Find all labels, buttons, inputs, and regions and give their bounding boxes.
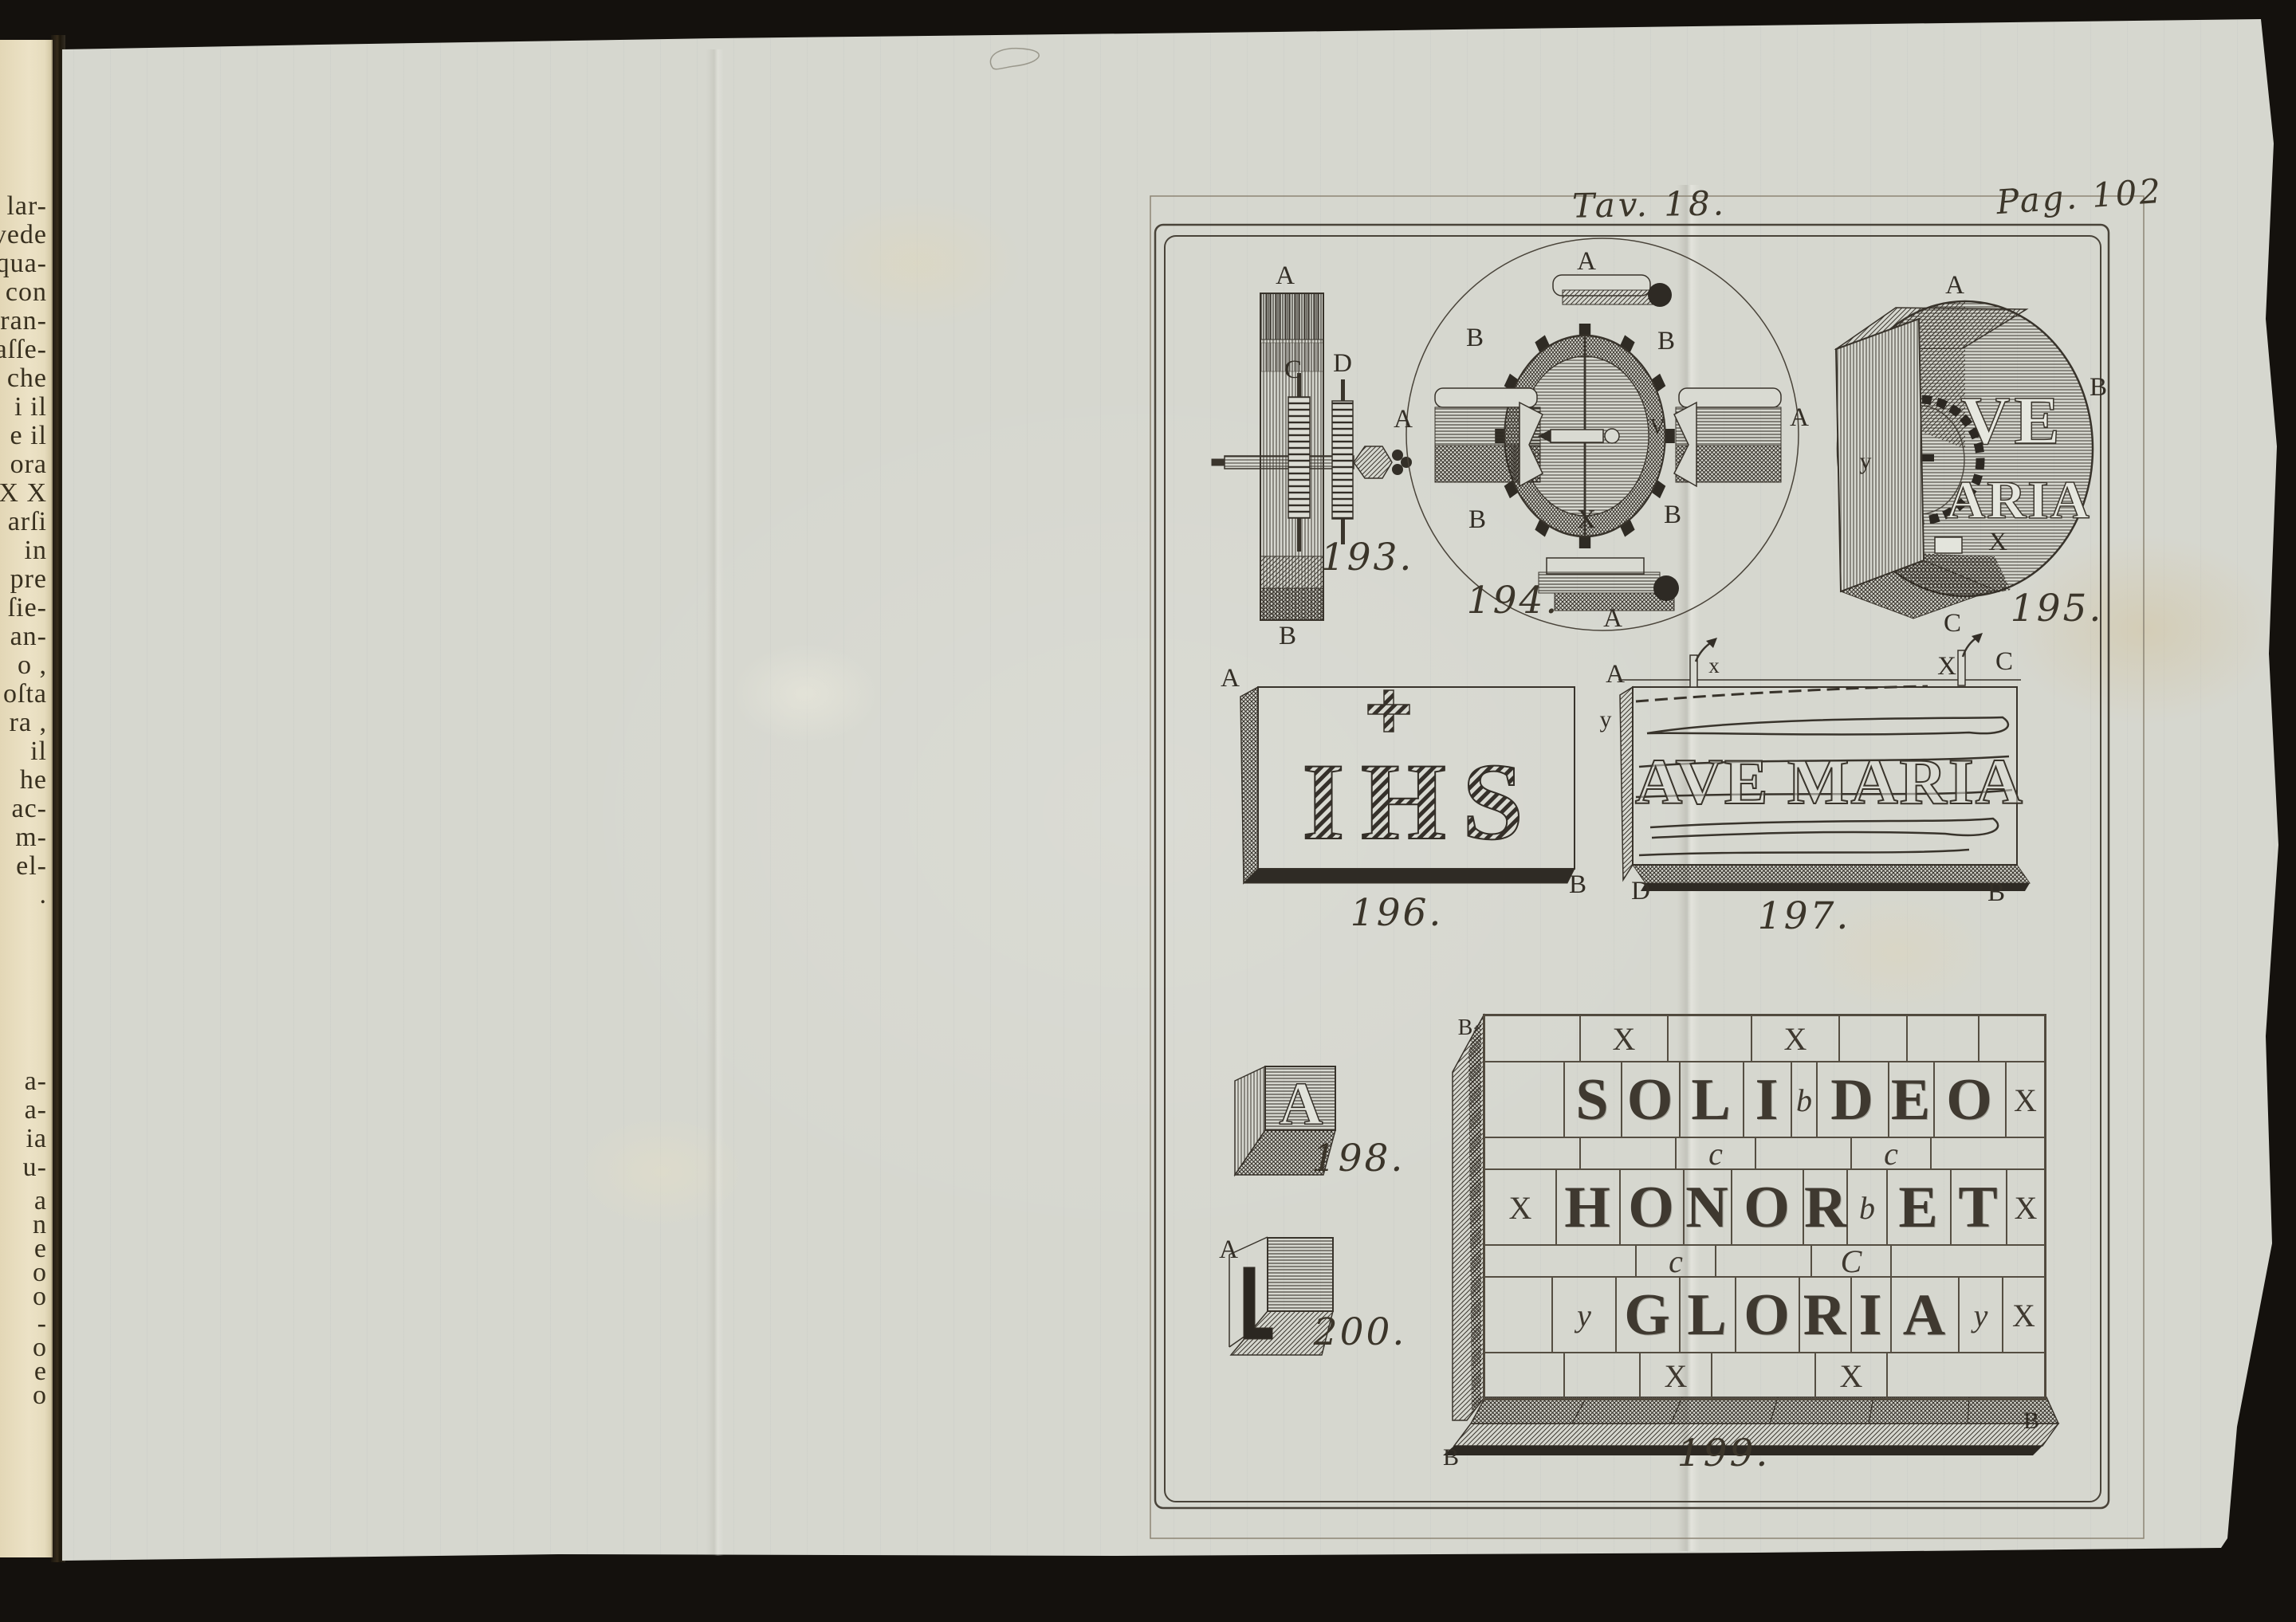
mosaic-tile [1712,1353,1815,1399]
margin-text-fragment: con [6,277,47,308]
margin-text-fragment: he [20,765,47,795]
mosaic-tile-X: X [1815,1353,1887,1399]
mosaic-forme-grid: XXSOLIbDEOXccXHONORbETXcCyGLORIAyXXX [1483,1014,2046,1400]
margin-text-fragment: lar- [6,191,47,222]
mosaic-tile-c: c [1851,1137,1931,1169]
margin-text-fragment: a- [25,1095,47,1125]
margin-text-fragment: oſta [3,679,47,709]
mosaic-tile [1931,1137,2045,1169]
margin-text-fragment: arſi [8,507,47,537]
facing-page-text-column: lar-vedequa-conran-aſſe-chei ile iloraX … [0,40,49,1557]
mosaic-tile-X: X [2007,1169,2045,1245]
mosaic-tile-L: L [1680,1062,1744,1137]
mosaic-tile-y: y [1959,1277,2003,1353]
mosaic-tile-L: L [1680,1277,1736,1353]
mosaic-tile-X: X [2003,1277,2045,1353]
mosaic-tile-H: H [1556,1169,1620,1245]
mosaic-tile-A: A [1891,1277,1959,1353]
mosaic-tile [1484,1353,1564,1399]
mosaic-row: cc [1484,1137,2045,1169]
mosaic-tile [1755,1137,1851,1169]
margin-text-fragment: m- [15,823,47,853]
scanned-book-page: lar-vedequa-conran-aſſe-chei ile iloraX … [0,0,2296,1622]
mosaic-tile-O: O [1620,1169,1684,1245]
mosaic-tile-X: X [1640,1353,1712,1399]
mosaic-tile-E: E [1887,1169,1951,1245]
margin-text-fragment: e il [10,421,47,451]
mosaic-row: yGLORIAyX [1484,1277,2045,1353]
margin-text-fragment: ſie- [8,593,47,623]
mosaic-tile [1484,1245,1636,1277]
mosaic-tile-X: X [1484,1169,1556,1245]
mosaic-tile-X: X [2006,1062,2045,1137]
plate-number-caption: Tav. 18. [1572,183,1728,225]
mosaic-tile-N: N [1684,1169,1732,1245]
mosaic-tile [1716,1245,1811,1277]
mosaic-tile-y: y [1552,1277,1616,1353]
mosaic-tile [1979,1015,2045,1062]
mosaic-tile-O: O [1622,1062,1680,1137]
mosaic-tile [1564,1353,1640,1399]
margin-text-fragment: u- [23,1153,47,1183]
mosaic-tile-T: T [1951,1169,2007,1245]
mosaic-tile-c: c [1676,1137,1755,1169]
margin-text-fragment: ra , [10,708,47,738]
margin-text-fragment: ia [26,1124,47,1154]
margin-text-fragment: an- [10,622,47,652]
margin-text-fragment: ran- [0,306,47,336]
mosaic-row: XX [1484,1015,2045,1062]
margin-text-fragment: in [25,536,47,566]
mosaic-tile-D: D [1817,1062,1889,1137]
margin-text-fragment: i il [14,392,47,422]
mosaic-tile [1580,1137,1676,1169]
mosaic-row: cC [1484,1245,2045,1277]
mosaic-tile-X: X [1580,1015,1668,1062]
margin-text-fragment: o [33,1380,47,1411]
margin-text-fragment: . [40,880,48,910]
margin-text-fragment: qua- [0,249,47,279]
margin-text-fragment: aſſe- [0,335,47,365]
margin-text-fragment: vede [0,220,47,250]
mosaic-tile-c: c [1636,1245,1716,1277]
mosaic-tile-b: b [1791,1062,1817,1137]
margin-text-fragment: o , [18,650,47,681]
mosaic-tile-O: O [1736,1277,1799,1353]
mosaic-tile-I: I [1851,1277,1891,1353]
mosaic-row: SOLIbDEOX [1484,1062,2045,1137]
mosaic-tile-O: O [1732,1169,1803,1245]
margin-text-fragment: che [7,363,47,394]
mosaic-tile [1887,1353,2045,1399]
mosaic-tile-E: E [1889,1062,1934,1137]
mosaic-tile [1891,1245,2045,1277]
mosaic-tile-R: R [1799,1277,1851,1353]
mosaic-tile [1484,1137,1580,1169]
margin-text-fragment: ora [10,450,47,480]
margin-text-fragment: o [33,1282,47,1312]
mosaic-tile [1484,1062,1564,1137]
mosaic-tile-R: R [1803,1169,1847,1245]
mosaic-row: XX [1484,1353,2045,1399]
margin-text-fragment: pre [10,564,47,595]
mosaic-tile [1484,1277,1552,1353]
mosaic-tile-S: S [1564,1062,1622,1137]
margin-text-fragment: il [30,736,47,767]
mosaic-tile-b: b [1847,1169,1887,1245]
mosaic-tile-C: C [1811,1245,1891,1277]
margin-text-fragment: a- [25,1066,47,1097]
mosaic-tile-I: I [1744,1062,1791,1137]
margin-text-fragment: X X [0,478,47,509]
mosaic-tile-G: G [1616,1277,1680,1353]
margin-text-fragment: ac- [11,794,47,824]
facing-page-edge: lar-vedequa-conran-aſſe-chei ile iloraX … [0,40,53,1557]
mosaic-tile [1484,1015,1580,1062]
margin-text-fragment: el- [16,851,47,882]
mosaic-tile [1668,1015,1751,1062]
mosaic-tile-X: X [1751,1015,1839,1062]
mosaic-tile [1907,1015,1979,1062]
mosaic-row: XHONORbETX [1484,1169,2045,1245]
mosaic-tile [1839,1015,1907,1062]
mosaic-tile-O: O [1934,1062,2006,1137]
